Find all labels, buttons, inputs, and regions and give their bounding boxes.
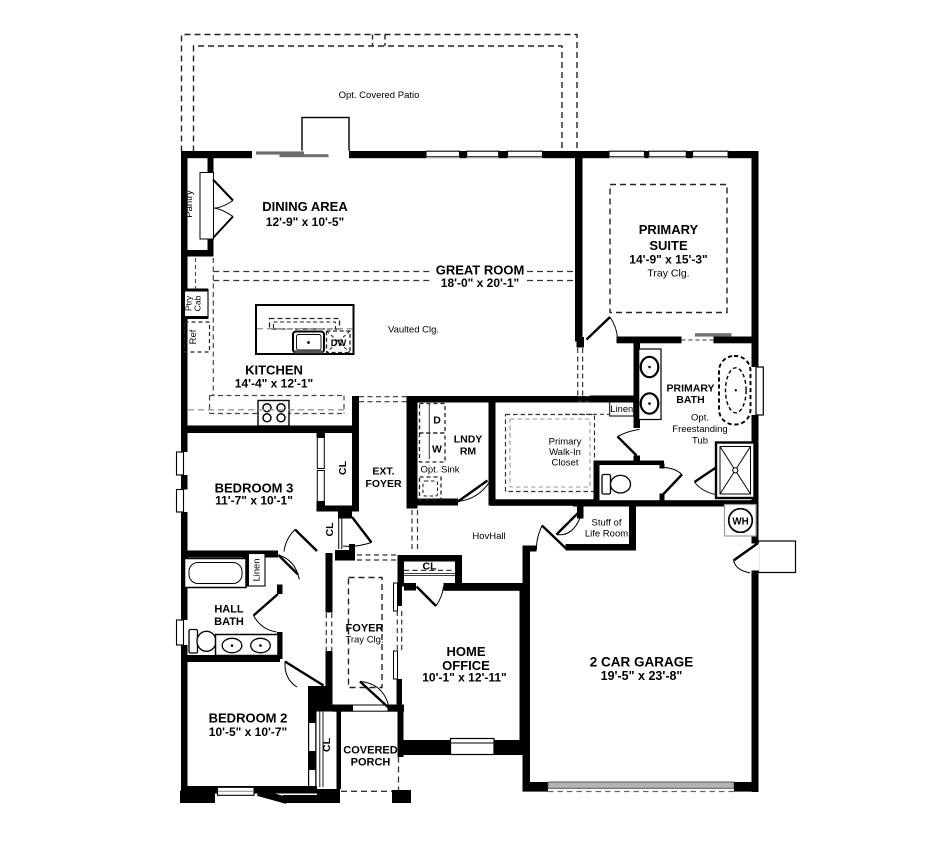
svg-text:14'-9" x 15'-3": 14'-9" x 15'-3" bbox=[629, 253, 707, 267]
svg-text:FOYER: FOYER bbox=[365, 478, 402, 490]
svg-text:CL: CL bbox=[423, 561, 438, 573]
svg-text:W: W bbox=[432, 444, 442, 456]
svg-text:Opt.: Opt. bbox=[691, 413, 709, 424]
svg-text:Opt. Sink: Opt. Sink bbox=[420, 465, 459, 476]
svg-text:CL: CL bbox=[324, 522, 336, 537]
svg-text:PRIMARY: PRIMARY bbox=[639, 222, 699, 237]
svg-text:DW: DW bbox=[331, 338, 347, 348]
svg-text:CL: CL bbox=[321, 737, 333, 752]
svg-text:WH: WH bbox=[732, 516, 748, 527]
svg-text:EXT.: EXT. bbox=[372, 466, 394, 478]
svg-text:KITCHEN: KITCHEN bbox=[245, 363, 303, 378]
svg-text:D: D bbox=[433, 415, 441, 427]
svg-text:COVERED: COVERED bbox=[343, 745, 397, 757]
svg-text:CL: CL bbox=[337, 460, 349, 475]
svg-text:18'-0" x 20'-1": 18'-0" x 20'-1" bbox=[441, 276, 519, 290]
svg-text:Opt. Covered Patio: Opt. Covered Patio bbox=[339, 90, 420, 101]
svg-text:BEDROOM 2: BEDROOM 2 bbox=[209, 711, 288, 726]
svg-text:PRIMARY: PRIMARY bbox=[666, 383, 714, 395]
svg-text:Tub: Tub bbox=[692, 436, 708, 447]
svg-text:Linen: Linen bbox=[610, 404, 633, 414]
svg-text:Vaulted Clg.: Vaulted Clg. bbox=[388, 325, 439, 336]
svg-text:Freestanding: Freestanding bbox=[672, 424, 727, 435]
svg-text:BATH: BATH bbox=[214, 616, 244, 628]
svg-text:HovHall: HovHall bbox=[472, 531, 505, 542]
svg-text:10'-1" x 12'-11": 10'-1" x 12'-11" bbox=[422, 671, 506, 685]
svg-text:19'-5" x 23'-8": 19'-5" x 23'-8" bbox=[601, 669, 683, 683]
svg-text:11'-7" x 10'-1": 11'-7" x 10'-1" bbox=[215, 494, 293, 508]
svg-text:Linen: Linen bbox=[252, 559, 262, 582]
svg-text:LNDY: LNDY bbox=[454, 434, 483, 446]
svg-text:2 CAR GARAGE: 2 CAR GARAGE bbox=[590, 655, 694, 670]
svg-text:Stuff of: Stuff of bbox=[592, 518, 622, 529]
svg-text:Walk-In: Walk-In bbox=[549, 447, 581, 458]
svg-text:PORCH: PORCH bbox=[351, 757, 391, 769]
svg-text:SUITE: SUITE bbox=[649, 238, 688, 253]
svg-text:14'-4" x 12'-1": 14'-4" x 12'-1" bbox=[235, 377, 313, 391]
svg-text:Closet: Closet bbox=[552, 458, 579, 469]
svg-text:FOYER: FOYER bbox=[346, 623, 384, 635]
svg-text:Pantry: Pantry bbox=[184, 190, 195, 218]
svg-text:DINING AREA: DINING AREA bbox=[262, 199, 348, 214]
svg-text:BATH: BATH bbox=[676, 394, 704, 406]
svg-text:Cab: Cab bbox=[193, 295, 203, 311]
svg-text:HALL: HALL bbox=[214, 604, 244, 616]
svg-text:Ref: Ref bbox=[188, 329, 199, 344]
svg-text:Tray Clg.: Tray Clg. bbox=[647, 268, 689, 280]
svg-text:Tray Clg.: Tray Clg. bbox=[345, 635, 383, 646]
svg-text:RM: RM bbox=[460, 446, 477, 458]
svg-text:HOME: HOME bbox=[447, 644, 486, 659]
svg-text:Primary: Primary bbox=[549, 437, 582, 448]
svg-text:12'-9" x 10'-5": 12'-9" x 10'-5" bbox=[266, 215, 344, 229]
svg-text:Life Room: Life Room bbox=[585, 529, 628, 540]
svg-text:10'-5" x 10'-7": 10'-5" x 10'-7" bbox=[209, 725, 287, 739]
